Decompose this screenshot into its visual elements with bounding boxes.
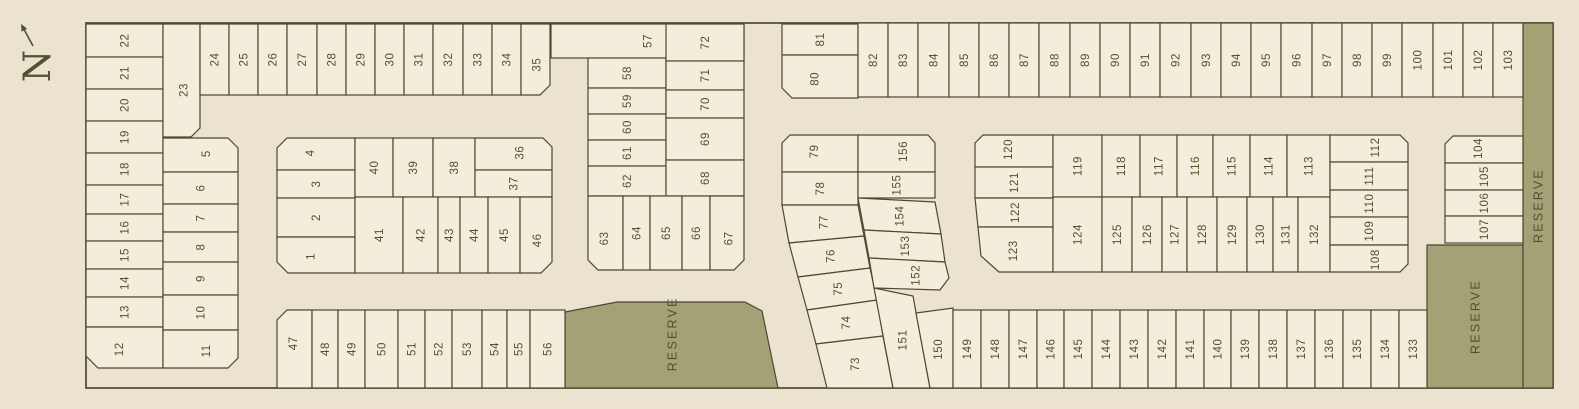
lot-label-21: 21 [120,66,132,80]
lot-label-15: 15 [120,248,132,262]
lot-label-147: 147 [1018,339,1030,360]
lot-label-64: 64 [632,226,644,240]
lot-label-73: 73 [850,357,862,371]
lot-label-88: 88 [1050,53,1062,67]
lot-label-51: 51 [407,342,419,356]
lot-label-37: 37 [509,177,521,191]
lot-label-36: 36 [514,146,526,160]
lot-label-145: 145 [1073,339,1085,360]
lot-label-2: 2 [311,214,323,221]
plat-map: RESERVERESERVERESERVE2221201918171615141… [0,0,1579,409]
lot-label-70: 70 [700,97,712,111]
lot-label-117: 117 [1154,156,1166,176]
lot-label-101: 101 [1443,50,1455,71]
lot-label-34: 34 [502,53,514,67]
lot-label-24: 24 [210,53,222,67]
lot-label-56: 56 [543,342,555,356]
lot-label-142: 142 [1157,339,1169,360]
lot-label-111: 111 [1364,166,1376,185]
lot-label-118: 118 [1116,156,1128,176]
lot-label-156: 156 [898,141,910,162]
lot-label-30: 30 [385,53,397,67]
lot-23[interactable] [163,24,200,137]
lot-label-126: 126 [1142,224,1154,245]
compass-arrow-shaft [24,30,33,46]
lot-label-11: 11 [201,344,213,357]
lot-label-85: 85 [959,53,971,67]
lot-label-12: 12 [114,342,126,356]
lot-label-10: 10 [196,306,208,320]
plat-map-svg: RESERVERESERVERESERVE2221201918171615141… [0,0,1579,409]
lot-label-86: 86 [989,53,1001,67]
lot-label-16: 16 [120,221,132,235]
lot-label-6: 6 [196,185,208,192]
lot-label-87: 87 [1019,53,1031,67]
lot-label-47: 47 [288,336,300,350]
lot-label-29: 29 [356,53,368,67]
lot-label-83: 83 [898,53,910,67]
lot-label-84: 84 [929,53,941,67]
lot-label-97: 97 [1322,53,1334,67]
lot-label-141: 141 [1185,339,1197,360]
lot-label-136: 136 [1324,339,1336,360]
lot-label-106: 106 [1479,193,1491,214]
lot-label-28: 28 [327,53,339,67]
lot-label-35: 35 [531,58,543,72]
lot-label-124: 124 [1073,224,1085,245]
lot-label-100: 100 [1413,50,1425,71]
lot-label-61: 61 [622,146,634,160]
lot-label-46: 46 [532,233,544,247]
lot-label-138: 138 [1268,339,1280,360]
lot-label-81: 81 [815,33,827,47]
lot-label-89: 89 [1080,53,1092,67]
lot-label-3: 3 [311,181,323,188]
lot-label-40: 40 [369,161,381,175]
lot-label-102: 102 [1473,50,1485,71]
lot-label-22: 22 [120,34,132,48]
lot-label-75: 75 [833,282,845,296]
lot-label-58: 58 [622,66,634,80]
lot-label-131: 131 [1281,224,1293,245]
lot-label-154: 154 [895,206,907,227]
lot-label-140: 140 [1213,339,1225,360]
lot-label-114: 114 [1264,156,1276,176]
lot-152[interactable] [869,258,949,290]
lot-label-68: 68 [700,171,712,185]
lot-label-27: 27 [297,53,309,67]
lot-label-82: 82 [868,53,880,67]
lot-label-20: 20 [120,98,132,112]
lot-label-99: 99 [1382,53,1394,67]
lot-label-110: 110 [1364,193,1376,213]
lot-label-134: 134 [1380,339,1392,360]
lot-label-43: 43 [444,228,456,242]
lot-label-133: 133 [1408,339,1420,360]
lot-label-4: 4 [305,149,317,156]
lot-label-123: 123 [1008,240,1020,261]
north-compass: N [16,24,59,82]
lot-label-79: 79 [809,144,821,158]
lot-label-95: 95 [1261,53,1273,67]
lot-label-112: 112 [1370,137,1382,157]
reserve-label-1: RESERVE [665,296,679,371]
lot-label-77: 77 [818,215,830,229]
lot-label-14: 14 [120,276,132,290]
lot-label-137: 137 [1296,339,1308,360]
lot-label-98: 98 [1352,53,1364,67]
lot-label-59: 59 [622,94,634,108]
lot-label-69: 69 [700,132,712,146]
lot-108[interactable] [1330,245,1408,272]
lot-label-146: 146 [1046,339,1058,360]
lot-label-127: 127 [1170,224,1182,245]
lot-label-90: 90 [1110,53,1122,67]
lot-label-67: 67 [723,231,735,245]
lot-label-116: 116 [1190,156,1202,176]
lot-label-42: 42 [416,228,428,242]
lot-label-17: 17 [120,193,132,207]
lot-label-115: 115 [1227,156,1239,176]
lot-label-71: 71 [700,69,712,83]
lot-label-125: 125 [1112,224,1124,245]
lot-label-153: 153 [900,236,912,257]
lot-label-130: 130 [1255,224,1267,245]
lot-label-8: 8 [196,244,208,251]
lot-label-52: 52 [434,342,446,356]
lot-label-91: 91 [1140,53,1152,67]
lot-label-9: 9 [196,275,208,282]
lot-label-122: 122 [1010,202,1022,223]
lot-label-63: 63 [599,231,611,245]
lot-label-7: 7 [196,215,208,222]
lot-label-13: 13 [120,305,132,319]
lot-label-72: 72 [700,36,712,50]
compass-n-label: N [16,50,59,82]
lot-label-80: 80 [809,72,821,86]
reserve-label-3: RESERVE [1531,168,1545,243]
lot-156[interactable] [858,135,935,172]
lot-label-144: 144 [1101,339,1113,360]
lot-label-48: 48 [320,342,332,356]
lot-label-96: 96 [1292,53,1304,67]
lot-label-31: 31 [414,53,426,67]
lot-label-32: 32 [443,53,455,67]
lot-label-93: 93 [1201,53,1213,67]
lot-label-139: 139 [1240,339,1252,360]
lot-label-62: 62 [622,174,634,188]
lot-label-74: 74 [841,316,853,330]
lot-label-78: 78 [815,182,827,196]
lot-label-57: 57 [643,34,655,48]
lot-112[interactable] [1330,135,1408,162]
lot-label-66: 66 [691,226,703,240]
lot-label-55: 55 [514,342,526,356]
reserve-label-2: RESERVE [1468,279,1482,354]
lot-label-54: 54 [490,342,502,356]
lot-label-120: 120 [1003,139,1015,160]
lot-label-19: 19 [120,130,132,144]
lot-label-135: 135 [1352,339,1364,360]
lot-label-39: 39 [408,161,420,175]
lot-label-76: 76 [825,249,837,263]
lot-label-113: 113 [1304,156,1316,176]
lot-label-108: 108 [1370,249,1382,270]
lot-label-148: 148 [990,339,1002,360]
lot-label-150: 150 [933,339,945,360]
lot-label-132: 132 [1309,224,1321,245]
lot-label-26: 26 [268,53,280,67]
lot-label-129: 129 [1227,224,1239,245]
lot-label-92: 92 [1171,53,1183,67]
lot-label-60: 60 [622,120,634,134]
lot-label-45: 45 [499,228,511,242]
lot-label-49: 49 [347,342,359,356]
lot-label-107: 107 [1479,219,1491,240]
lot-label-128: 128 [1197,224,1209,245]
lot-label-50: 50 [377,342,389,356]
lot-label-121: 121 [1009,172,1021,193]
lot-label-155: 155 [892,175,904,196]
lot-label-33: 33 [473,53,485,67]
lot-label-151: 151 [898,330,910,351]
lot-label-23: 23 [178,83,190,97]
lot-label-105: 105 [1479,166,1491,187]
lot-label-119: 119 [1073,156,1085,176]
lot-label-38: 38 [449,161,461,175]
lot-label-103: 103 [1503,50,1515,71]
lot-label-53: 53 [462,342,474,356]
lot-label-1: 1 [305,253,317,260]
lot-label-94: 94 [1231,53,1243,67]
lot-label-18: 18 [120,162,132,176]
lot-label-41: 41 [374,228,386,242]
lot-label-44: 44 [469,228,481,242]
lot-label-152: 152 [910,265,922,286]
lot-label-25: 25 [239,53,251,67]
lot-label-65: 65 [661,226,673,240]
lot-label-149: 149 [962,339,974,360]
lot-label-109: 109 [1364,221,1376,242]
lot-label-5: 5 [201,150,213,157]
lot-label-143: 143 [1129,339,1141,360]
lot-label-104: 104 [1473,138,1485,159]
